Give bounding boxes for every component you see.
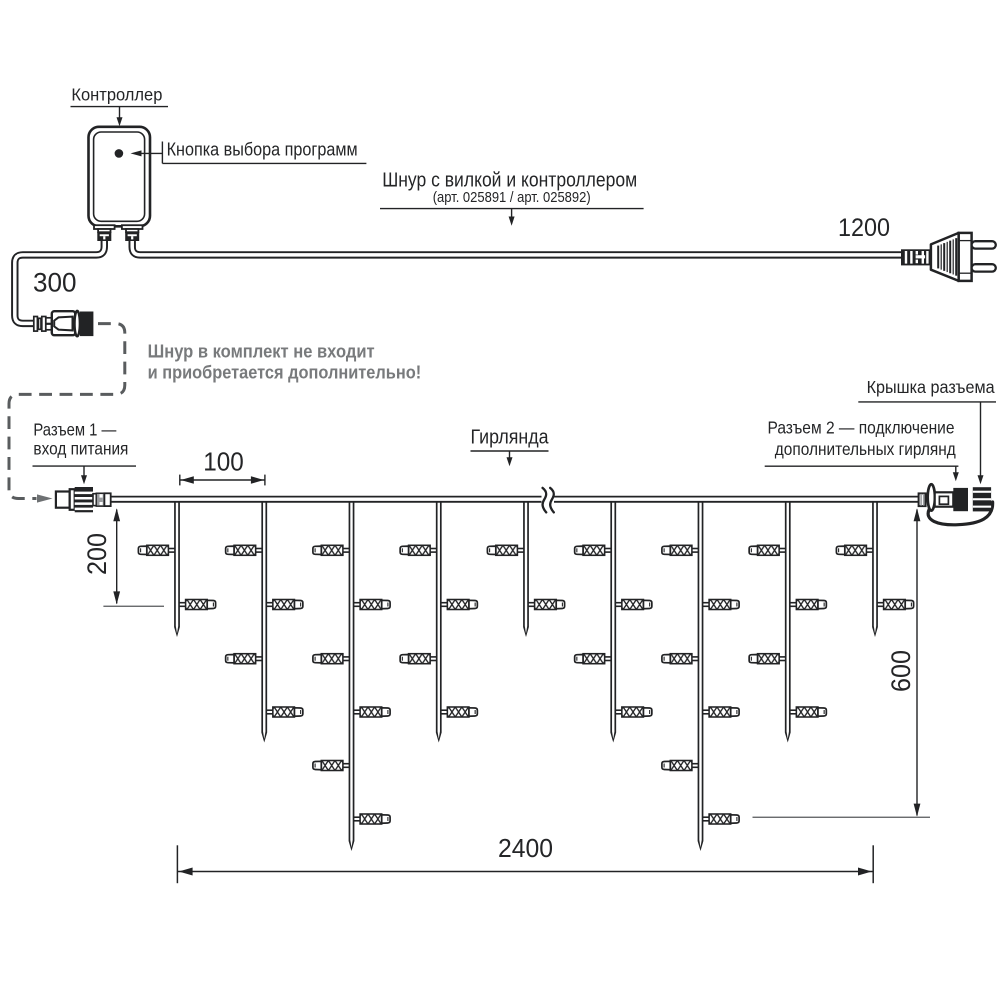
svg-text:100: 100: [203, 448, 244, 476]
svg-text:Шнур в комплект не входит: Шнур в комплект не входит: [148, 340, 375, 361]
svg-text:и приобретается дополнительно!: и приобретается дополнительно!: [148, 362, 422, 383]
svg-text:Разъем 1 —: Разъем 1 —: [33, 420, 116, 440]
svg-text:дополнительных гирлянд: дополнительных гирлянд: [775, 439, 957, 459]
svg-text:Крышка разъема: Крышка разъема: [867, 377, 995, 397]
svg-text:(арт. 025891 / арт. 025892): (арт. 025891 / арт. 025892): [433, 190, 591, 206]
svg-text:2400: 2400: [498, 835, 553, 863]
svg-text:Шнур с вилкой и контроллером: Шнур с вилкой и контроллером: [382, 169, 637, 191]
svg-text:Разъем 2 — подключение: Разъем 2 — подключение: [768, 418, 955, 438]
svg-text:Кнопка выбора программ: Кнопка выбора программ: [167, 140, 358, 160]
svg-text:Контроллер: Контроллер: [71, 84, 162, 104]
svg-text:Гирлянда: Гирлянда: [471, 425, 550, 448]
svg-text:200: 200: [82, 533, 112, 575]
svg-text:1200: 1200: [838, 214, 890, 242]
svg-text:вход питания: вход питания: [33, 439, 128, 459]
svg-text:300: 300: [33, 267, 77, 297]
svg-text:600: 600: [886, 650, 916, 692]
